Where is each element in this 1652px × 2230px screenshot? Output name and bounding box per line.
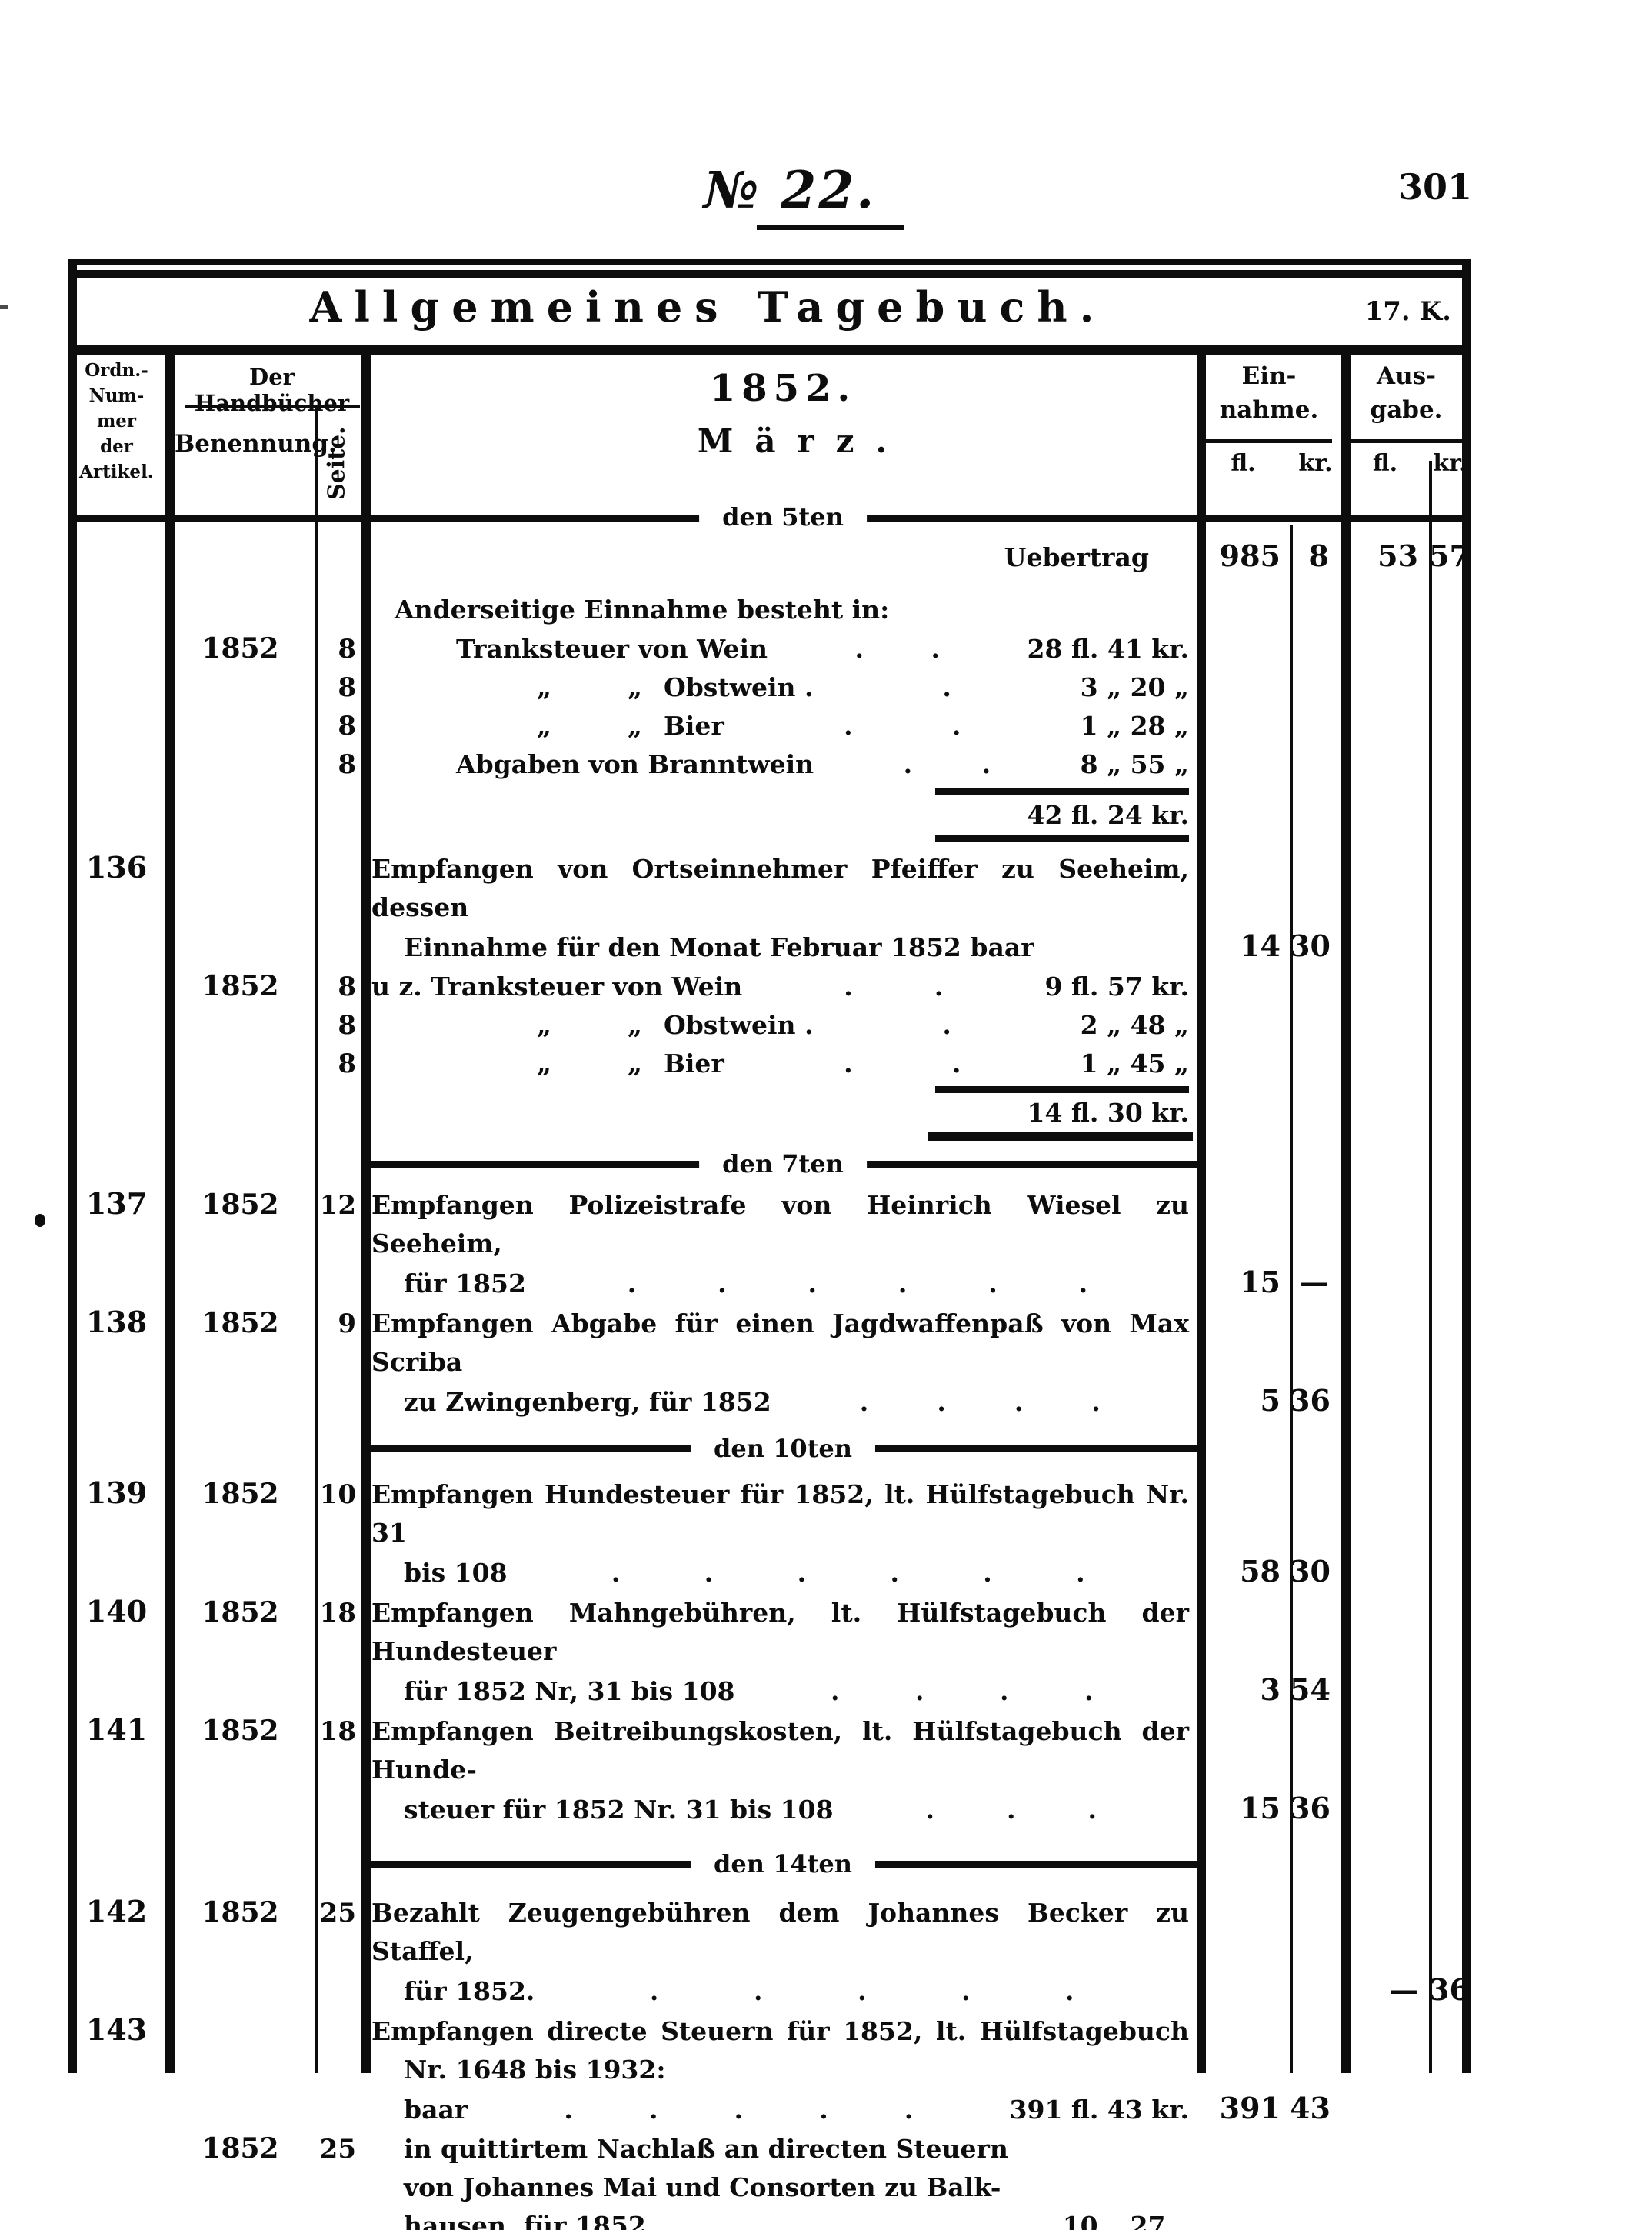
ausgabe-rule: [1351, 439, 1463, 443]
einnahme-kr: 30: [1290, 927, 1341, 965]
rule-einnahme-ausgabe: [1341, 350, 1351, 2073]
table-row: baar.....391 fl. 43 kr. 391 43: [68, 2089, 1471, 2129]
dot-leader: ...: [834, 1791, 1189, 1829]
column-header-seite: Seite.: [312, 407, 361, 519]
seite-value: 8: [315, 707, 361, 745]
entry-text-cell: bis 108......: [361, 1554, 1197, 1592]
einnahme-kr: 36: [1290, 1789, 1341, 1828]
rule-ausgabe-fl-kr: [1429, 461, 1432, 2073]
entry-text: zu Zwingenberg, für 1852: [371, 1383, 771, 1422]
einnahme-kr: 43: [1290, 2089, 1341, 2128]
entry-text-cell: u z. Tranksteuer von Wein..9 fl. 57 kr.: [361, 968, 1197, 1006]
entry-text-cell: für 1852 Nr, 31 bis 108....: [361, 1672, 1197, 1711]
einnahme-kr: 30: [1290, 1552, 1341, 1591]
entry-text-cell: „ „ Obstwein ..3 „ 20 „: [361, 668, 1197, 707]
einnahme-fl: 15: [1197, 1789, 1290, 1828]
einnahme-fl: 14: [1197, 927, 1290, 965]
table-row: für 1852...... — 36: [68, 1971, 1471, 2011]
table-row: 143 Empfangen directe Steuern für 1852, …: [68, 2011, 1471, 2051]
entry-text: Empfangen Mahngebühren, lt. Hülfstagebuc…: [371, 1594, 1189, 1671]
table-row: steuer für 1852 Nr. 31 bis 108... 15 36: [68, 1789, 1471, 1829]
border-left: [68, 259, 77, 2073]
entry-text-cell: Empfangen Beitreibungskosten, lt. Hülfst…: [361, 1712, 1197, 1789]
header-ausgabe-fl: fl.: [1341, 450, 1429, 477]
inline-amount: 42 fl. 24 kr.: [1027, 796, 1189, 835]
entry-text: Einnahme für den Monat Februar 1852 baar: [371, 928, 1034, 967]
inline-amount: 14 fl. 30 kr.: [1027, 1094, 1189, 1132]
rule-einnahme-fl-kr: [1290, 525, 1293, 2073]
artikel-number: 136: [68, 848, 165, 887]
entry-text: Bezahlt Zeugengebühren dem Johannes Beck…: [371, 1894, 1189, 1971]
table-row: bis 108...... 58 30: [68, 1552, 1471, 1592]
benennung-value: 1852: [165, 1893, 315, 1932]
inline-amount: 9 fl. 57 kr.: [1044, 968, 1189, 1006]
einnahme-fl: 3: [1197, 1671, 1290, 1709]
rule-seite-right: [361, 350, 371, 2073]
table-title: Allgemeines Tagebuch.: [198, 282, 1217, 332]
dot-leader: ..: [724, 707, 1081, 745]
entry-text-cell: für 1852......: [361, 1972, 1197, 2011]
inline-amount: 1 „ 45 „: [1081, 1045, 1189, 1083]
header-month: März.: [389, 422, 1217, 460]
einnahme-fl: 15: [1197, 1263, 1290, 1302]
artikel-number: 143: [68, 2011, 165, 2049]
day-divider: den 14ten: [68, 1848, 1471, 1880]
entry-text-cell: Empfangen directe Steuern für 1852, lt. …: [361, 2012, 1197, 2051]
dot-leader: ..: [768, 630, 1027, 668]
column-header-ordn-nummer: Ordn.- Num- mer der Artikel.: [72, 358, 161, 485]
dot-leader: .: [814, 668, 1081, 707]
table-row: 138 1852 9 Empfangen Abgabe für einen Ja…: [68, 1303, 1471, 1382]
entry-text: „ „ Obstwein .: [371, 1006, 814, 1045]
entry-text-cell: Einnahme für den Monat Februar 1852 baar: [361, 928, 1197, 967]
entry-text: bis 108: [371, 1554, 508, 1592]
table-row: 137 1852 12 Empfangen Polizeistrafe von …: [68, 1185, 1471, 1263]
benennung-value: 1852: [165, 629, 315, 668]
table-row: 1852 25 in quittirtem Nachlaß an directe…: [68, 2129, 1471, 2168]
sum-rule: [68, 788, 1471, 796]
header-einnahme-kr: kr.: [1290, 450, 1341, 477]
ledger-table: Allgemeines Tagebuch. 17. K. Ordn.- Num-…: [68, 259, 1471, 2230]
table-row: 140 1852 18 Empfangen Mahngebühren, lt. …: [68, 1592, 1471, 1671]
entry-text-cell: Empfangen Polizeistrafe von Heinrich Wie…: [361, 1186, 1197, 1263]
rule-benennung-seite: [315, 405, 318, 2073]
entry-text-cell: Tranksteuer von Wein..28 fl. 41 kr.: [361, 630, 1197, 668]
entry-text-cell: Empfangen Mahngebühren, lt. Hülfstagebuc…: [361, 1594, 1197, 1671]
margin-ink-dot: [35, 1214, 45, 1227]
benennung-value: 1852: [165, 1185, 315, 1224]
seite-value: 8: [315, 630, 361, 668]
dot-leader: .....: [468, 2091, 1009, 2129]
entry-text: von Johannes Mai und Consorten zu Balk-: [371, 2168, 1001, 2207]
entry-text: u z. Tranksteuer von Wein: [371, 968, 742, 1006]
inline-amount: 1 „ 28 „: [1081, 707, 1189, 745]
table-row: 8 „ „ Bier..1 „ 28 „: [68, 707, 1471, 745]
sheet-label: 17. K.: [1365, 296, 1451, 327]
entry-text-cell: für 1852......: [361, 1265, 1197, 1303]
einnahme-kr: 8: [1290, 537, 1341, 575]
entry-text: in quittirtem Nachlaß an directen Steuer…: [371, 2130, 1008, 2168]
seite-value: 25: [315, 1894, 361, 1932]
entry-text-cell: „ „ Bier..1 „ 28 „: [361, 707, 1197, 745]
table-row: hausen, für 1852...10 „ 27 „: [68, 2207, 1471, 2230]
dot-leader: ..: [724, 1045, 1081, 1083]
title-bottom-rule: [68, 345, 1471, 355]
artikel-number: 141: [68, 1711, 165, 1749]
table-row: Einnahme für den Monat Februar 1852 baar…: [68, 927, 1471, 967]
sum-rule: [68, 1086, 1471, 1094]
entry-text: Abgaben von Branntwein: [371, 745, 814, 784]
benennung-value: 1852: [165, 1304, 315, 1342]
column-header-benennung: Benennung.: [175, 430, 314, 458]
seite-value: 25: [315, 2130, 361, 2168]
entry-text: „ „ Bier: [371, 707, 724, 745]
benennung-value: 1852: [165, 967, 315, 1005]
entry-text: baar: [371, 2091, 468, 2129]
rule-artikel-right: [165, 350, 175, 2073]
header-year: 1852.: [369, 367, 1197, 410]
entry-text-cell: Bezahlt Zeugengebühren dem Johannes Beck…: [361, 1894, 1197, 1971]
entry-text-cell: in quittirtem Nachlaß an directen Steuer…: [361, 2130, 1197, 2168]
column-header-einnahme: Ein- nahme.: [1197, 359, 1341, 427]
artikel-number: 139: [68, 1474, 165, 1512]
table-row: 8 „ „ Bier..1 „ 45 „: [68, 1045, 1471, 1083]
table-row: Nr. 1648 bis 1932:: [68, 2051, 1471, 2089]
entry-text-cell: hausen, für 1852...10 „ 27 „: [361, 2207, 1197, 2230]
entry-text: für 1852: [371, 1265, 526, 1303]
table-row: für 1852...... 15 —: [68, 1263, 1471, 1303]
entry-text-cell: Empfangen Hundesteuer für 1852, lt. Hülf…: [361, 1475, 1197, 1552]
entry-text: „ „ Bier: [371, 1045, 724, 1083]
entry-text-cell: 42 fl. 24 kr.: [361, 796, 1197, 835]
einnahme-fl: 391: [1197, 2089, 1290, 2128]
top-rule-inner: [68, 270, 1471, 278]
table-row: 42 fl. 24 kr.: [68, 796, 1471, 835]
day-divider-5ten: den 5ten: [699, 498, 867, 536]
dot-leader: .....: [535, 1972, 1189, 2011]
seite-value: 18: [315, 1594, 361, 1632]
dot-leader: ......: [508, 1554, 1189, 1592]
entry-text-cell: Uebertrag: [361, 538, 1197, 577]
sum-rule: [68, 835, 1471, 842]
entry-text: Empfangen directe Steuern für 1852, lt. …: [371, 2012, 1189, 2051]
issue-number: № 22.: [671, 160, 909, 220]
seite-value: 8: [315, 745, 361, 784]
artikel-number: 137: [68, 1185, 165, 1223]
entry-text: Empfangen von Ortseinnehmer Pfeiffer zu …: [371, 850, 1189, 927]
dot-leader: ....: [771, 1383, 1189, 1422]
inline-amount: 8 „ 55 „: [1081, 745, 1189, 784]
entry-text: Uebertrag: [371, 538, 1189, 577]
entry-text-cell: Empfangen von Ortseinnehmer Pfeiffer zu …: [361, 850, 1197, 927]
einnahme-rule: [1206, 439, 1332, 443]
seite-value: 8: [315, 1006, 361, 1045]
table-row: 142 1852 25 Bezahlt Zeugengebühren dem J…: [68, 1892, 1471, 1971]
artikel-number: 142: [68, 1892, 165, 1931]
day-divider-label: den 10ten: [691, 1432, 875, 1465]
entry-text: für 1852.: [371, 1972, 535, 2011]
header-einnahme-fl: fl.: [1197, 450, 1290, 477]
table-row: für 1852 Nr, 31 bis 108.... 3 54: [68, 1671, 1471, 1711]
seite-value: 12: [315, 1186, 361, 1225]
dot-leader: ......: [526, 1265, 1189, 1303]
einnahme-fl: 58: [1197, 1552, 1290, 1591]
ausgabe-fl: 53: [1341, 537, 1429, 575]
entry-text-cell: Abgaben von Branntwein..8 „ 55 „: [361, 745, 1197, 784]
day-divider-label: den 7ten: [699, 1148, 867, 1180]
inline-amount: 28 fl. 41 kr.: [1027, 630, 1189, 668]
table-row: von Johannes Mai und Consorten zu Balk-: [68, 2168, 1471, 2207]
day-divider-label: den 14ten: [691, 1848, 875, 1880]
einnahme-kr: —: [1290, 1263, 1341, 1302]
entry-text-cell: baar.....391 fl. 43 kr.: [361, 2091, 1197, 2129]
day-divider: den 7ten: [68, 1148, 1471, 1180]
entry-text-cell: von Johannes Mai und Consorten zu Balk-: [361, 2168, 1197, 2207]
entry-text: Anderseitige Einnahme besteht in:: [371, 591, 889, 629]
table-row: 1852 8 u z. Tranksteuer von Wein..9 fl. …: [68, 967, 1471, 1006]
einnahme-kr: 54: [1290, 1671, 1341, 1709]
artikel-number: 138: [68, 1303, 165, 1342]
entry-text: Tranksteuer von Wein: [371, 630, 768, 668]
table-row: Anderseitige Einnahme besteht in:: [68, 591, 1471, 629]
dot-leader: .: [814, 1006, 1081, 1045]
einnahme-fl: 5: [1197, 1382, 1290, 1420]
seite-value: 18: [315, 1712, 361, 1751]
entry-text: Nr. 1648 bis 1932:: [371, 2051, 666, 2089]
dot-leader: ..: [742, 968, 1044, 1006]
entry-text: hausen, für 1852: [371, 2207, 646, 2230]
entry-text: Empfangen Beitreibungskosten, lt. Hülfst…: [371, 1712, 1189, 1789]
table-row: 8 „ „ Obstwein ..3 „ 20 „: [68, 668, 1471, 707]
day-divider: den 10ten: [68, 1432, 1471, 1465]
dot-leader: ....: [735, 1672, 1190, 1711]
table-row: 136 Empfangen von Ortseinnehmer Pfeiffer…: [68, 848, 1471, 927]
table-body: Uebertrag 985 8 53 57 Anderseitige Einna…: [68, 537, 1471, 2230]
table-row: 139 1852 10 Empfangen Hundesteuer für 18…: [68, 1474, 1471, 1552]
top-rule-outer: [68, 259, 1471, 265]
entry-text-cell: 14 fl. 30 kr.: [361, 1094, 1197, 1132]
margin-tick-artifact: [0, 305, 8, 309]
inline-amount: 3 „ 20 „: [1081, 668, 1189, 707]
benennung-value: 1852: [165, 1593, 315, 1632]
seite-value: 10: [315, 1475, 361, 1514]
entry-text: „ „ Obstwein .: [371, 668, 814, 707]
entry-text-cell: „ „ Bier..1 „ 45 „: [361, 1045, 1197, 1083]
einnahme-kr: 36: [1290, 1382, 1341, 1420]
table-row: Uebertrag 985 8 53 57: [68, 537, 1471, 577]
benennung-value: 1852: [165, 1475, 315, 1513]
entry-text-cell: steuer für 1852 Nr. 31 bis 108...: [361, 1791, 1197, 1829]
table-row: 8 „ „ Obstwein ..2 „ 48 „: [68, 1006, 1471, 1045]
benennung-value: 1852: [165, 2129, 315, 2168]
entry-text: Empfangen Abgabe für einen Jagdwaffenpaß…: [371, 1305, 1189, 1382]
ausgabe-fl: —: [1341, 1971, 1429, 2009]
seite-value: 8: [315, 668, 361, 707]
dot-leader: ..: [814, 745, 1080, 784]
border-right: [1462, 259, 1471, 2073]
table-row: zu Zwingenberg, für 1852.... 5 36: [68, 1382, 1471, 1422]
table-row: 14 fl. 30 kr.: [68, 1094, 1471, 1132]
dot-leader: ...: [646, 2207, 1063, 2230]
table-row: 141 1852 18 Empfangen Beitreibungskosten…: [68, 1711, 1471, 1789]
entry-text-cell: zu Zwingenberg, für 1852....: [361, 1383, 1197, 1422]
table-row: 8 Abgaben von Branntwein..8 „ 55 „: [68, 745, 1471, 784]
entry-text-cell: Anderseitige Einnahme besteht in:: [361, 591, 1197, 629]
benennung-value: 1852: [165, 1712, 315, 1750]
seite-value: 8: [315, 968, 361, 1006]
entry-text: steuer für 1852 Nr. 31 bis 108: [371, 1791, 834, 1829]
seite-value: 8: [315, 1045, 361, 1083]
entry-text-cell: Empfangen Abgabe für einen Jagdwaffenpaß…: [361, 1305, 1197, 1382]
artikel-number: 140: [68, 1592, 165, 1631]
column-header-ausgabe: Aus- gabe.: [1341, 359, 1471, 427]
entry-text-cell: „ „ Obstwein ..2 „ 48 „: [361, 1006, 1197, 1045]
scanned-ledger-page: № 22. 301 Allgemeines Tagebuch. 17. K. O…: [0, 0, 1652, 2230]
entry-text: Empfangen Polizeistrafe von Heinrich Wie…: [371, 1186, 1189, 1263]
inline-amount: 391 fl. 43 kr.: [1010, 2091, 1189, 2129]
inline-amount: 2 „ 48 „: [1081, 1006, 1189, 1045]
rule-content-einnahme: [1197, 350, 1206, 2073]
inline-amount: 10 „ 27 „: [1063, 2207, 1189, 2230]
seite-value: 9: [315, 1305, 361, 1343]
einnahme-fl: 985: [1197, 537, 1290, 575]
sum-rule: [68, 1132, 1471, 1140]
page-number: 301: [1375, 166, 1472, 208]
entry-text: Empfangen Hundesteuer für 1852, lt. Hülf…: [371, 1475, 1189, 1552]
table-row: 1852 8 Tranksteuer von Wein..28 fl. 41 k…: [68, 629, 1471, 668]
entry-text-cell: Nr. 1648 bis 1932:: [361, 2051, 1197, 2089]
issue-underline: [757, 225, 904, 230]
entry-text: für 1852 Nr, 31 bis 108: [371, 1672, 735, 1711]
